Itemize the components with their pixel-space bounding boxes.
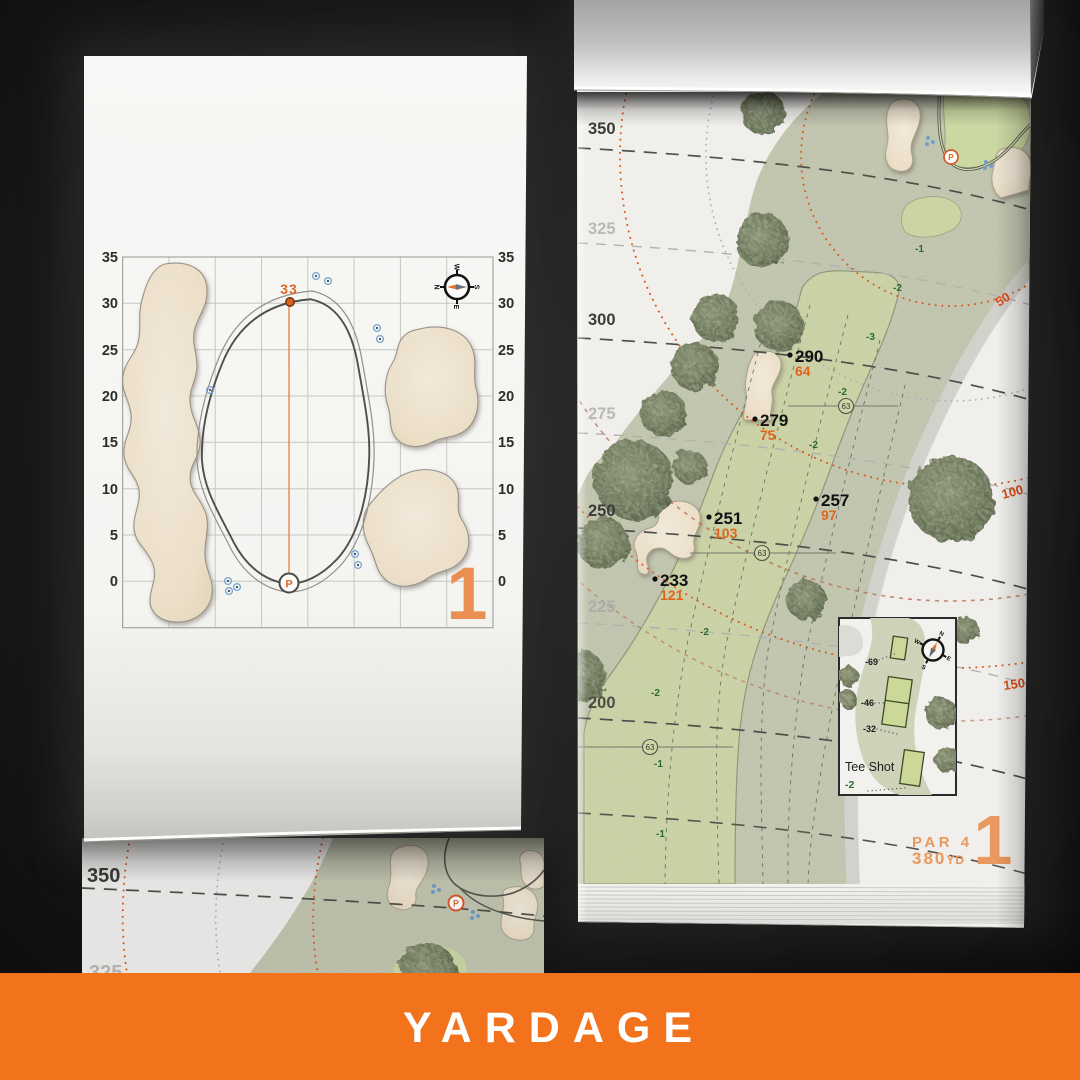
svg-text:63: 63 xyxy=(842,402,851,411)
svg-text:20: 20 xyxy=(102,389,118,405)
svg-text:35: 35 xyxy=(498,250,514,266)
svg-text:-3: -3 xyxy=(866,332,875,343)
svg-text:-2: -2 xyxy=(651,688,660,699)
svg-text:5: 5 xyxy=(110,528,118,544)
svg-text:75: 75 xyxy=(760,427,776,443)
svg-text:-1: -1 xyxy=(654,759,663,770)
svg-text:103: 103 xyxy=(714,525,738,541)
svg-text:64: 64 xyxy=(795,363,811,379)
svg-text:0: 0 xyxy=(498,574,506,590)
svg-text:30: 30 xyxy=(498,296,514,312)
svg-text:33: 33 xyxy=(280,281,298,297)
svg-text:275: 275 xyxy=(588,405,616,423)
svg-text:250: 250 xyxy=(588,502,616,520)
svg-text:15: 15 xyxy=(498,435,514,451)
svg-text:P: P xyxy=(285,579,292,591)
svg-text:-1: -1 xyxy=(915,244,924,255)
svg-text:E: E xyxy=(452,305,459,310)
svg-text:1: 1 xyxy=(446,552,487,635)
svg-text:S: S xyxy=(473,285,480,290)
svg-text:W: W xyxy=(453,264,460,271)
svg-text:-2: -2 xyxy=(809,440,818,451)
svg-text:97: 97 xyxy=(821,507,837,523)
svg-text:YARDAGE: YARDAGE xyxy=(403,1004,705,1052)
svg-text:200: 200 xyxy=(588,694,616,712)
svg-text:-32: -32 xyxy=(863,724,876,734)
svg-text:-46: -46 xyxy=(861,698,874,708)
svg-text:121: 121 xyxy=(660,587,684,603)
svg-text:-2: -2 xyxy=(893,283,902,294)
svg-text:-2: -2 xyxy=(838,387,847,398)
svg-text:-2: -2 xyxy=(700,627,709,638)
svg-text:300: 300 xyxy=(588,311,616,329)
svg-text:25: 25 xyxy=(102,343,118,359)
svg-text:30: 30 xyxy=(102,296,118,312)
svg-text:63: 63 xyxy=(758,549,767,558)
svg-text:35: 35 xyxy=(102,250,118,266)
svg-text:N: N xyxy=(433,284,440,289)
svg-text:225: 225 xyxy=(588,598,616,616)
svg-text:-1: -1 xyxy=(656,829,665,840)
svg-text:5: 5 xyxy=(498,528,506,544)
svg-text:P: P xyxy=(948,152,954,162)
svg-text:-69: -69 xyxy=(865,657,878,667)
svg-text:15: 15 xyxy=(102,435,118,451)
svg-text:0: 0 xyxy=(110,574,118,590)
svg-text:20: 20 xyxy=(498,389,514,405)
svg-text:325: 325 xyxy=(588,220,616,238)
svg-text:25: 25 xyxy=(498,343,514,359)
svg-text:-2: -2 xyxy=(845,779,854,791)
svg-text:63: 63 xyxy=(646,743,655,752)
svg-text:10: 10 xyxy=(102,482,118,498)
svg-text:10: 10 xyxy=(498,482,514,498)
svg-text:Tee Shot: Tee Shot xyxy=(845,760,895,774)
